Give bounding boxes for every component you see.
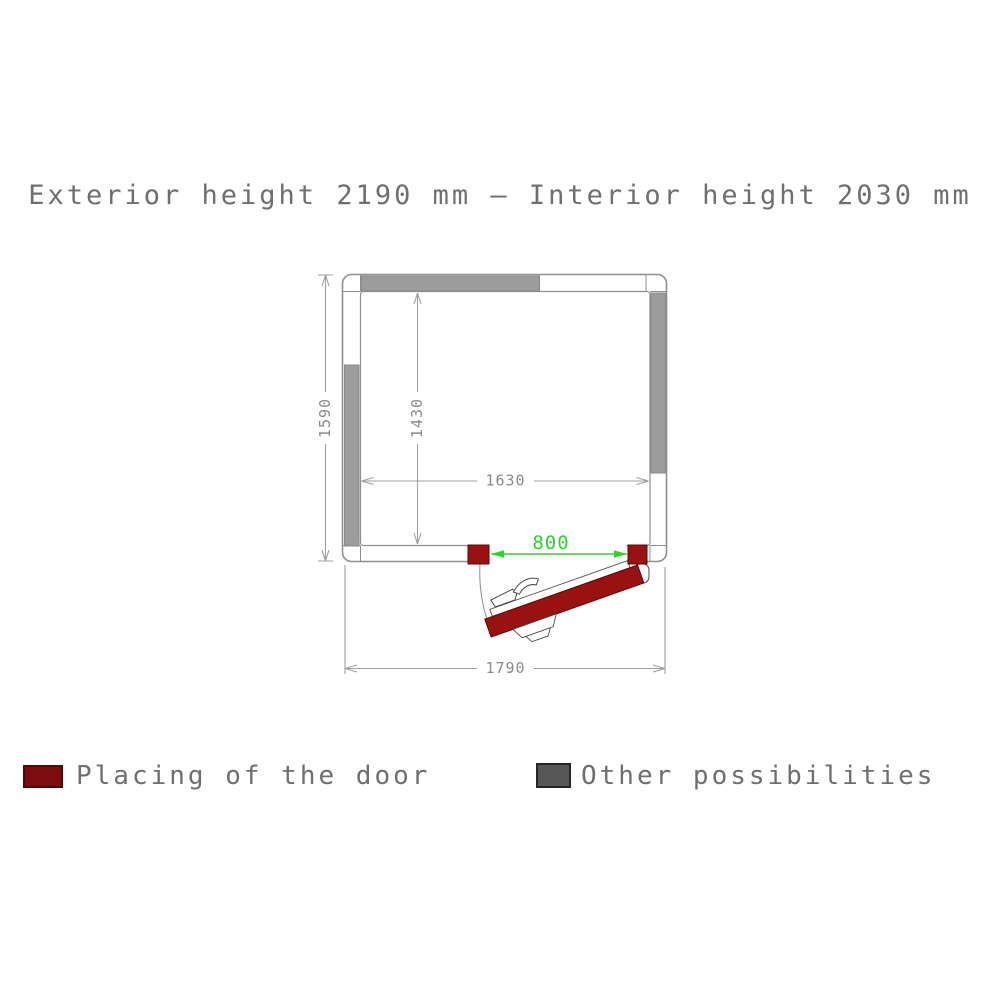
other-possibility-bar-top bbox=[362, 276, 540, 291]
dimension-door-opening-label: 800 bbox=[532, 532, 569, 554]
other-possibility-bar-left bbox=[345, 365, 360, 546]
dimension-interior-depth-label: 1430 bbox=[408, 398, 426, 438]
door-swing-arc bbox=[480, 564, 489, 625]
other-possibility-bar-right bbox=[651, 293, 666, 473]
dimension-interior-width-label: 1630 bbox=[485, 472, 525, 490]
room-outer-wall bbox=[343, 275, 667, 562]
door-post-left bbox=[468, 545, 489, 564]
dimension-exterior-width-label: 1790 bbox=[485, 659, 525, 677]
floorplan-diagram: 800 1590 1430 1630 1790 bbox=[0, 0, 1000, 1000]
door-post-right bbox=[628, 545, 647, 564]
page: Exterior height 2190 mm – Interior heigh… bbox=[0, 0, 1000, 1000]
dimension-exterior-depth-label: 1590 bbox=[316, 398, 334, 438]
